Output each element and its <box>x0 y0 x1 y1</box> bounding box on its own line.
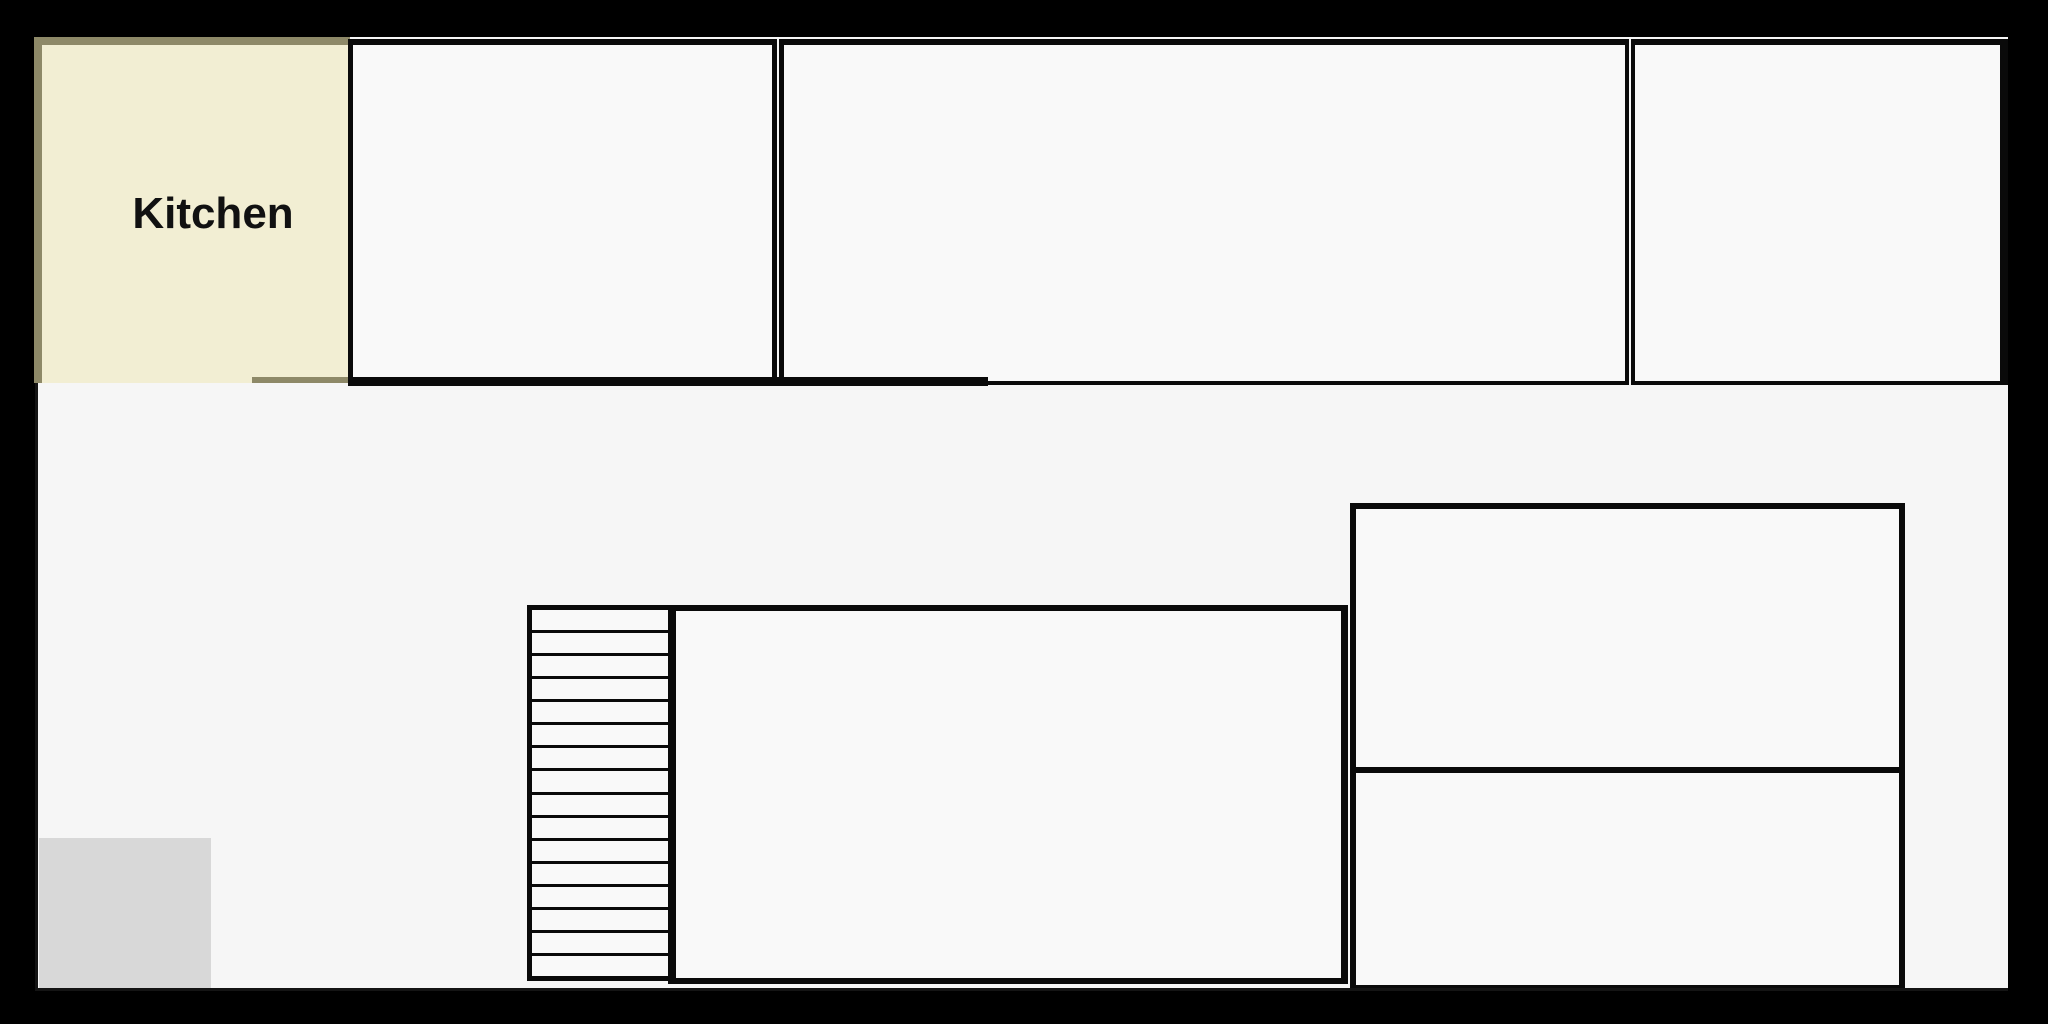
floor-plan-canvas: Kitchen <box>0 0 2048 1024</box>
stair-step <box>532 702 668 725</box>
room-top-1[interactable] <box>348 39 777 385</box>
stair-step <box>532 933 668 956</box>
stair-step <box>532 748 668 771</box>
stair-step <box>532 633 668 656</box>
room-right-lower[interactable] <box>1350 773 1905 988</box>
stair-step <box>532 725 668 748</box>
kitchen-bottom-wall-segment <box>252 377 350 383</box>
room-top-3[interactable] <box>1631 39 2008 385</box>
stair-step <box>532 679 668 702</box>
wall-segment-thick <box>348 377 988 386</box>
stair-step <box>532 795 668 818</box>
stair-step <box>532 818 668 841</box>
stair-step <box>532 610 668 633</box>
floor-mat[interactable] <box>39 838 211 988</box>
stair-step <box>532 956 668 976</box>
room-kitchen-label: Kitchen <box>132 189 293 239</box>
room-kitchen[interactable]: Kitchen <box>34 37 350 383</box>
stair-step <box>532 771 668 794</box>
stair-step <box>532 656 668 679</box>
stair-step <box>532 841 668 864</box>
stair-step <box>532 910 668 933</box>
stair-step <box>532 887 668 910</box>
room-large-lower[interactable] <box>668 605 1348 984</box>
staircase[interactable] <box>527 605 676 981</box>
room-top-2[interactable] <box>779 39 1629 385</box>
room-right-upper[interactable] <box>1350 503 1905 773</box>
stair-step <box>532 864 668 887</box>
